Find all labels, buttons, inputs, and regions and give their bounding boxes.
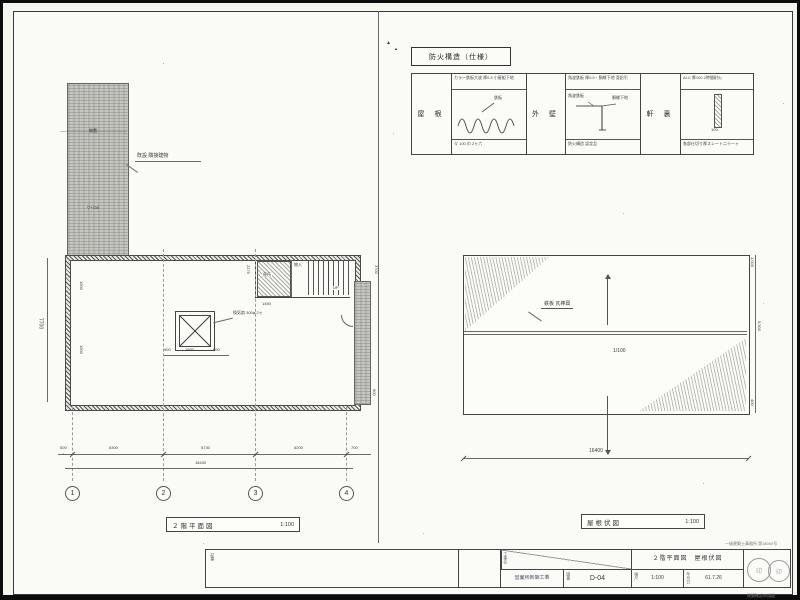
slope-arrow-up bbox=[607, 275, 608, 325]
grid-bubble-4: 4 bbox=[339, 486, 354, 501]
floor-plan-title: ２階平面図 bbox=[172, 520, 215, 530]
dim-1800: 1800 bbox=[185, 348, 194, 352]
legend-wall-drawing: 角波鉄板 胴縁下地 bbox=[566, 90, 640, 139]
legend-wall-callout-a: 角波鉄板 bbox=[568, 94, 584, 98]
alc-panel-icon bbox=[714, 94, 722, 128]
partition-wall-horizontal bbox=[255, 297, 350, 298]
revision-header: 記事 bbox=[210, 553, 214, 561]
dim-3700: 3700 bbox=[374, 265, 378, 274]
existing-building-hatch bbox=[67, 83, 129, 261]
stair-direction-label: UP bbox=[333, 286, 339, 290]
left-dim-line bbox=[47, 258, 48, 402]
roof-plan-title-box: 屋根伏図 1:100 bbox=[581, 514, 705, 529]
approval-stamp-icon: 印 bbox=[768, 560, 790, 582]
bottom-total-dim-line bbox=[65, 468, 353, 469]
room-label: 便所 bbox=[262, 273, 272, 277]
titleblock-sheetno-cell: 図番 D-04 bbox=[563, 569, 632, 588]
dim-500: 500 bbox=[60, 446, 67, 450]
scanned-sheet: ▲ ▲ 防火構造（仕様） 屋 根 カラー鉄板大波 厚0.5 小屋組下地 鉄板 々… bbox=[3, 3, 797, 595]
dim-900b: 900 bbox=[213, 348, 220, 352]
grid-line-2 bbox=[163, 249, 164, 481]
roof-plan-title: 屋根伏図 bbox=[587, 517, 621, 527]
grid-bubble-3: 3 bbox=[248, 486, 263, 501]
roof-right-dim-line bbox=[755, 255, 756, 413]
wall-section-icon bbox=[566, 92, 640, 134]
scan-noise bbox=[163, 63, 164, 64]
fold-mark-icon: ▲ bbox=[394, 47, 398, 51]
roof-plan-scale: 1:100 bbox=[685, 519, 699, 525]
grid-bubble-1: 1 bbox=[65, 486, 80, 501]
dim-900a: 900 bbox=[164, 348, 171, 352]
legend-wall-spec-top: 角波鉄板 厚0.5・胴縁下地 亜鉛引 bbox=[566, 74, 640, 90]
roof-dim-9500: 9,500 bbox=[757, 321, 761, 331]
permit-note: 建築確認申請図 bbox=[747, 594, 775, 598]
vent-shaft-box bbox=[175, 311, 215, 351]
titleblock-stamp-cell: 印 印 bbox=[743, 549, 791, 588]
dim-1500a: 1500 bbox=[79, 281, 83, 290]
titleblock-name-label: 工事名 bbox=[503, 552, 507, 564]
legend-roof-callout: 鉄板 bbox=[494, 96, 502, 100]
titleblock-scale: 1:100 bbox=[632, 570, 683, 587]
dim-6200: 6200 bbox=[294, 446, 303, 450]
dim-5730: 5730 bbox=[201, 446, 210, 450]
roof-slope-label: 1/100 bbox=[613, 349, 626, 354]
titleblock-sheet-no: D-04 bbox=[564, 570, 631, 587]
roof-dim-1000: 1,000 bbox=[750, 257, 754, 267]
dim-600: 600 bbox=[372, 389, 376, 396]
legend-label-wall: 外 壁 bbox=[527, 74, 566, 154]
titleblock-date-cell: 年月日 61.7.26 bbox=[683, 569, 744, 588]
titleblock-name-cell: 工事名 bbox=[500, 549, 632, 570]
legend-wall-spec-bottom: 防火構造 認定品 bbox=[566, 139, 640, 154]
bottom-dim-line bbox=[58, 454, 371, 455]
ridge-line-a bbox=[464, 331, 747, 332]
fireproof-legend: 屋 根 カラー鉄板大波 厚0.5 小屋組下地 鉄板 々 100 巾 2ヶ六 外 … bbox=[411, 73, 754, 155]
titleblock-project-cell: 営業所新築工事 bbox=[500, 569, 564, 588]
legend-eaves-callout: 100 bbox=[711, 128, 718, 132]
vent-label: 換気扇 300φ 2ヶ bbox=[233, 311, 263, 315]
titleblock-scale-cell: 縮尺 1:100 bbox=[631, 569, 684, 588]
room-hatch bbox=[257, 261, 291, 297]
dim-1500b: 1500 bbox=[79, 345, 83, 354]
legend-title: 防火構造（仕様） bbox=[429, 52, 493, 62]
titleblock-date: 61.7.26 bbox=[684, 570, 743, 587]
legend-roof-detail: カラー鉄板大波 厚0.5 小屋組下地 鉄板 々 100 巾 2ヶ六 bbox=[452, 74, 527, 154]
legend-eaves-drawing: 100 bbox=[681, 90, 753, 139]
stair-flight-line bbox=[328, 262, 329, 294]
closet-partition bbox=[291, 260, 292, 297]
existing-level-label: ▽+700 bbox=[87, 206, 99, 210]
roof-dim-16400: 16400 bbox=[589, 449, 603, 454]
grid-line-1 bbox=[72, 407, 73, 481]
legend-label-roof: 屋 根 bbox=[412, 74, 452, 154]
corrugated-roof-icon bbox=[452, 96, 526, 138]
sheet-fold-line bbox=[378, 11, 379, 543]
grid-bubble-2: 2 bbox=[156, 486, 171, 501]
roof-material-label: 鉄板 瓦棒葺 bbox=[541, 302, 573, 309]
floor-plan-title-box: ２階平面図 1:100 bbox=[166, 517, 300, 532]
arrow-head-icon bbox=[605, 274, 611, 279]
exterior-stair-hatch bbox=[354, 281, 371, 405]
vent-shaft-cross-icon bbox=[179, 315, 211, 347]
existing-building-label: 既設 隣接建物 bbox=[137, 154, 168, 159]
slope-arrow-down bbox=[607, 396, 608, 454]
legend-roof-spec-bottom: 々 100 巾 2ヶ六 bbox=[452, 139, 526, 154]
dim-1450: 1450 bbox=[262, 302, 271, 306]
grid-line-4 bbox=[346, 407, 347, 481]
legend-label-eaves: 軒 裏 bbox=[641, 74, 681, 154]
closet-label: 物入 bbox=[294, 263, 302, 267]
dim-7700: 7700 bbox=[37, 318, 42, 329]
dim-700: 700 bbox=[351, 446, 358, 450]
legend-roof-drawing: 鉄板 bbox=[452, 90, 526, 139]
vent-dim-line bbox=[163, 355, 229, 356]
revision-table: 記事 bbox=[205, 549, 460, 588]
grid-line-3 bbox=[255, 249, 256, 481]
legend-roof-spec-top: カラー鉄板大波 厚0.5 小屋組下地 bbox=[452, 74, 526, 90]
fold-mark-icon: ▲ bbox=[386, 41, 391, 46]
legend-wall-detail: 角波鉄板 厚0.5・胴縁下地 亜鉛引 角波鉄板 胴縁下地 防火構造 認定品 bbox=[566, 74, 641, 154]
dim-6300: 6300 bbox=[109, 446, 118, 450]
existing-leader-line bbox=[135, 161, 201, 162]
legend-title-box: 防火構造（仕様） bbox=[411, 47, 511, 66]
floor-plan-scale: 1:100 bbox=[280, 522, 294, 528]
legend-eaves-detail: ALC 厚100 2時間耐火 100 各部仕切り厚スレート二十一ヶ bbox=[681, 74, 753, 154]
legend-eaves-spec-bottom: 各部仕切り厚スレート二十一ヶ bbox=[681, 139, 753, 154]
arrow-head-icon bbox=[605, 450, 611, 455]
roof-dim-400: 400 bbox=[750, 399, 754, 406]
titleblock-project: 営業所新築工事 bbox=[501, 569, 563, 587]
ridge-line-b bbox=[464, 334, 747, 335]
roof-bottom-dim-line bbox=[463, 458, 748, 459]
titleblock-drawing-titles: ２階平面図 屋根伏図 bbox=[632, 550, 743, 569]
revision-side-cell bbox=[458, 549, 502, 588]
dim-2275: 2275 bbox=[246, 265, 250, 274]
titleblock-drawing-title-cell: ２階平面図 屋根伏図 bbox=[631, 549, 744, 570]
dim-total-18430: 18430 bbox=[195, 461, 206, 465]
legend-eaves-spec-top: ALC 厚100 2時間耐火 bbox=[681, 74, 753, 90]
existing-inner-label: 物置 bbox=[89, 129, 97, 133]
legend-wall-callout-b: 胴縁下地 bbox=[612, 96, 628, 100]
architect-office-note: 一級建築士事務所 第18000号 bbox=[725, 542, 777, 546]
